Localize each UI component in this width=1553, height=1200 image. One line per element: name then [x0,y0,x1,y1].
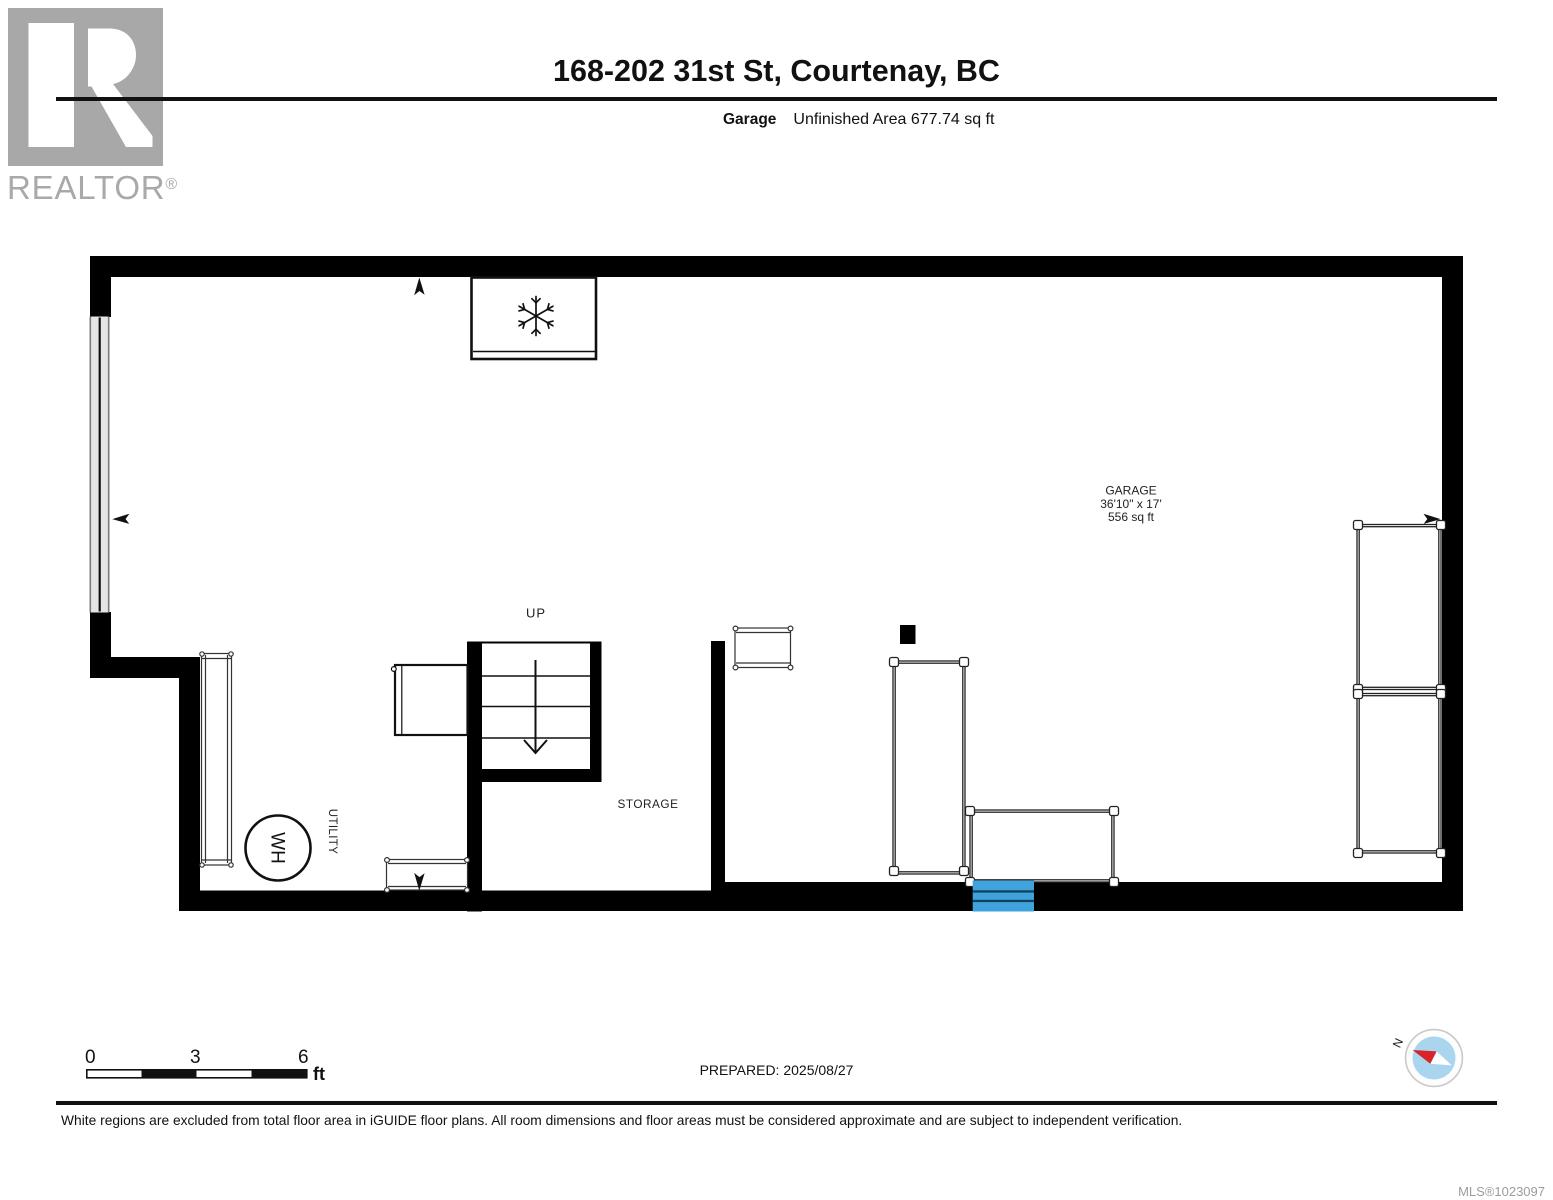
svg-text:N: N [1390,1036,1406,1050]
svg-text:UTILITY: UTILITY [326,809,338,855]
svg-text:STORAGE: STORAGE [618,797,679,811]
svg-text:UP: UP [526,606,546,621]
svg-text:GARAGE: GARAGE [1105,484,1156,498]
svg-text:36'10" x 17': 36'10" x 17' [1100,497,1162,511]
svg-text:556 sq ft: 556 sq ft [1108,510,1155,524]
svg-text:WH: WH [267,832,288,864]
